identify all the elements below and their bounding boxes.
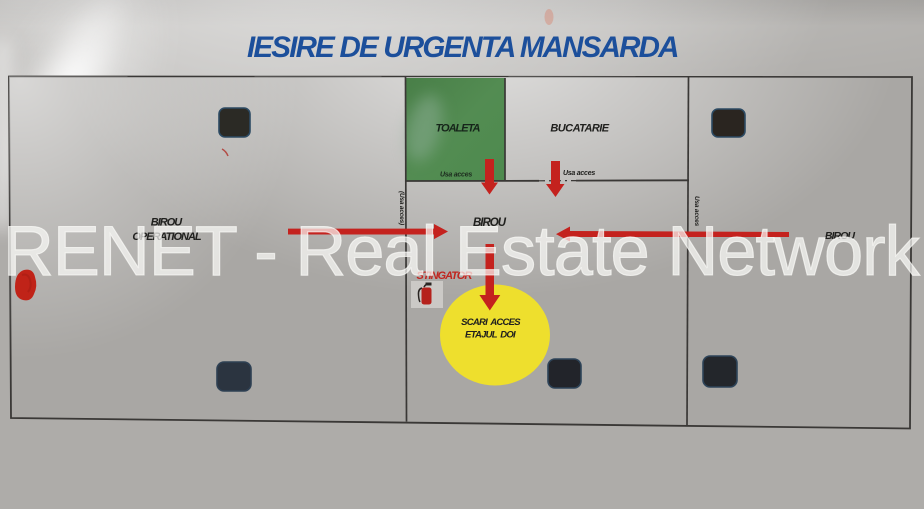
svg-text:TOALETA: TOALETA (436, 123, 481, 135)
svg-text:BUCATARIE: BUCATARIE (550, 123, 609, 135)
svg-text:SCARI ACCES: SCARI ACCES (461, 317, 521, 328)
svg-text:ETAJUL DOI: ETAJUL DOI (465, 330, 516, 341)
svg-text:Usa acces: Usa acces (563, 170, 595, 177)
svg-text:Usa acces: Usa acces (440, 172, 472, 179)
